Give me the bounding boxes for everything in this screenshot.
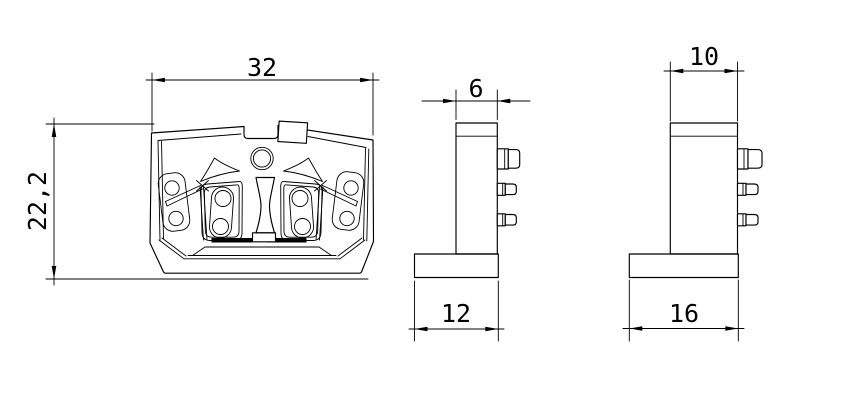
front-inner-chamfer-right-a xyxy=(340,240,365,259)
dim-end-top: 10 xyxy=(664,42,744,121)
side-pin-2 xyxy=(497,183,516,195)
arrowhead-icon xyxy=(360,78,373,83)
front-hole-left-top xyxy=(165,181,179,195)
front-center-tongue xyxy=(253,233,276,242)
front-inner-chamfer-left-b xyxy=(162,238,186,256)
dim-side-top: 6 xyxy=(422,74,530,120)
front-slot-left-hole-bottom xyxy=(213,219,229,235)
side-pin-3 xyxy=(497,214,516,226)
arrowhead-icon xyxy=(725,69,738,74)
dim-label-end-top: 10 xyxy=(689,42,719,71)
front-slot-left xyxy=(209,186,235,238)
front-wing-right xyxy=(284,158,323,182)
drawing-sheet: 32 22,2 xyxy=(0,0,855,420)
front-slot-right xyxy=(289,186,315,238)
side-column xyxy=(456,123,497,254)
dim-side-base: 12 xyxy=(409,281,504,341)
dim-front-width: 32 xyxy=(146,53,379,135)
arrowhead-icon xyxy=(415,327,428,332)
end-pin-2 xyxy=(738,183,759,195)
arrowhead-icon xyxy=(52,266,57,279)
front-inner-chamfer-right-b xyxy=(338,238,362,256)
end-column xyxy=(670,123,737,254)
front-inner-top-left xyxy=(158,134,241,141)
arrowhead-icon xyxy=(670,69,683,74)
dim-label-front-height: 22,2 xyxy=(23,171,52,231)
side-pin-1 xyxy=(497,149,519,169)
arrowhead-icon xyxy=(497,99,510,104)
dim-end-base: 16 xyxy=(623,280,744,341)
front-slot-left-hole-top xyxy=(215,191,231,207)
front-wing-left xyxy=(201,158,240,182)
drawing-canvas: 32 22,2 xyxy=(0,0,855,420)
arrowhead-icon xyxy=(725,326,738,331)
dim-label-side-base: 12 xyxy=(441,299,471,328)
side-view: 6 12 xyxy=(409,74,530,341)
front-center-hole-outer xyxy=(251,147,273,169)
end-pin-3 xyxy=(738,214,759,226)
front-inner-chamfer-left-a xyxy=(159,240,184,259)
front-shelf-upper xyxy=(193,247,332,256)
arrowhead-icon xyxy=(52,124,57,137)
front-hole-right-top xyxy=(344,181,358,195)
end-view: 10 16 xyxy=(623,42,762,341)
arrowhead-icon xyxy=(485,327,498,332)
front-center-divider xyxy=(256,178,275,233)
front-top-tab xyxy=(278,121,308,143)
front-slot-right-hole-top xyxy=(292,191,308,207)
front-bracket-right xyxy=(331,171,365,232)
side-base xyxy=(415,254,499,278)
arrowhead-icon xyxy=(443,99,456,104)
front-view: 32 22,2 xyxy=(23,53,379,285)
arrowhead-icon xyxy=(152,78,165,83)
end-pin-1 xyxy=(738,149,763,169)
dim-label-end-base: 16 xyxy=(669,299,699,328)
front-center-hole-inner xyxy=(253,150,270,167)
dim-front-height: 22,2 xyxy=(23,118,368,285)
dim-label-front-width: 32 xyxy=(247,53,277,82)
front-slot-right-hole-bottom xyxy=(295,219,311,235)
front-inner-wall-right-b xyxy=(367,149,369,241)
front-hole-right-bottom xyxy=(340,211,354,225)
end-base xyxy=(629,254,738,278)
arrowhead-icon xyxy=(629,326,642,331)
front-hole-left-bottom xyxy=(169,211,183,225)
front-inner-wall-right-a xyxy=(364,148,366,240)
dim-label-side-top: 6 xyxy=(468,74,483,103)
